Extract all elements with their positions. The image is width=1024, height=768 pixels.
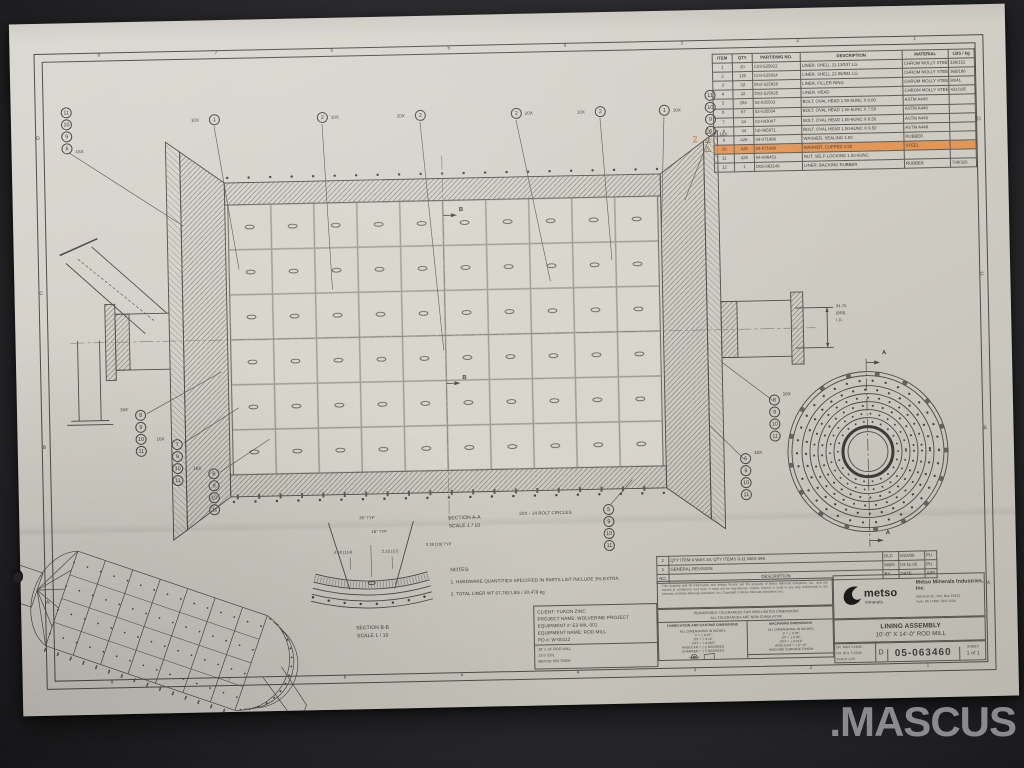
isometric-view — [9, 530, 330, 716]
callout-qty: 16X — [75, 149, 83, 154]
parts-list-table: ITEM QTY PART/DWG NO. DESCRIPTION MATERI… — [712, 48, 977, 173]
bb-dimension: 18" TYP — [372, 529, 387, 534]
client-line: CLIENT: YUKON ZINC — [537, 609, 586, 615]
balloon-stack: 1110 96 — [61, 107, 73, 154]
meta-row: DR. MJN 7/13/06 — [836, 645, 862, 650]
drawing-number-strip: DR. MJN 7/13/06 CH. DLS 7/13/06 SCALE 1:… — [834, 640, 986, 663]
client-line: PROJECT NAME: WOLVERINE PROJECT — [537, 615, 629, 622]
company-name: Metso Minerals Industries, Inc. — [916, 579, 984, 592]
callout-qty: 16X — [783, 391, 791, 396]
cut-label-a: A — [886, 530, 891, 536]
client-line: PO #: W-00112 — [538, 637, 571, 643]
client-subline: 13.5' EGL — [538, 653, 555, 657]
client-line: EQUIPMENT NAME: ROD MILL — [538, 629, 607, 635]
company-address: York, PA 17405-7312 USA — [916, 599, 956, 604]
callout-qty: 10X — [577, 109, 585, 114]
watermark: .MASCUS — [829, 698, 1016, 746]
section-bb-detail — [309, 521, 433, 610]
balloon-stack: 69 1011 — [740, 453, 752, 500]
drawing-sheet: 8 7 6 5 4 3 2 1 8 7 6 5 4 3 2 1 D C B A … — [9, 4, 1019, 717]
punch-hole — [12, 570, 23, 583]
bore-dimension-mm: [883] — [836, 310, 846, 315]
callout-qty: 16X — [719, 131, 727, 136]
logo-word: metso — [864, 587, 898, 600]
balloon-stack: 89 1011 — [769, 394, 781, 441]
third-angle-projection-icon — [688, 653, 718, 661]
client-subline: METSO S/N 75906 — [538, 659, 570, 664]
bb-dimension: 4.50 [114] — [334, 549, 353, 554]
callout-qty: 20X — [397, 113, 405, 118]
cut-label-b: B — [459, 207, 464, 213]
callout-qty: 10X — [331, 115, 339, 120]
notes-title: NOTES: — [450, 567, 469, 573]
client-line: EQUIPMENT #: E2-MIL-001 — [538, 622, 598, 628]
bb-dimension: 0.38 [10] TYP — [426, 541, 452, 547]
cut-label-b: B — [462, 375, 467, 381]
logo-sub: minerals — [865, 599, 883, 604]
client-subline: 10' x 14' ROD MILL — [538, 647, 571, 652]
sheet-value: 1 of 1 — [959, 650, 986, 657]
balloon-stack: 59 1011 — [603, 504, 615, 551]
bb-dimension: 36" TYP — [359, 515, 374, 520]
sheet-label: SHEET — [959, 644, 986, 649]
parts-header: QTY — [732, 53, 752, 63]
callout-qty: 10X — [673, 107, 681, 112]
drawing-number: 05-063460 — [887, 646, 960, 663]
callout-qty: 16X — [754, 450, 762, 455]
callout-qty: 16X — [120, 407, 128, 412]
balloon-stack: 79 1011 — [172, 439, 184, 486]
meta-row: SCALE 1:25 — [836, 657, 855, 661]
mach-line: MACHINE SURFACE FINISH — [747, 646, 834, 652]
company-block: metso minerals Metso Minerals Industries… — [833, 572, 986, 619]
tolerance-block: PERMISSIBLE TOLERANCES FOR NON-LIMITED D… — [657, 605, 834, 661]
meta-row: CH. DLS 7/13/06 — [836, 651, 862, 656]
cut-label-a: A — [882, 350, 887, 356]
callout-qty: 10X — [191, 118, 199, 123]
metso-logo-icon — [840, 584, 862, 608]
proprietary-notice: This drawing and all information and des… — [657, 577, 834, 609]
balloon-stack: 1110 96 — [704, 90, 716, 137]
balloon-stack: 69 1011 — [208, 468, 220, 515]
client-block: CLIENT: YUKON ZINC PROJECT NAME: WOLVERI… — [533, 603, 658, 670]
drawing-subtitle: 10'-0" X 14'-0" ROD MILL — [835, 630, 986, 639]
callout-qty: 16X — [193, 466, 201, 471]
parts-header: ITEM — [712, 54, 732, 64]
callout-qty: 20X — [525, 111, 533, 116]
drawing-title-block: LINING ASSEMBLY 10'-0" X 14'-0" ROD MILL — [834, 616, 986, 643]
balloon-stack: 89 1011 — [135, 410, 147, 457]
bore-dimension-suffix: I.D. — [836, 317, 843, 322]
bore-dimension: 34.75 — [836, 303, 847, 308]
fab-title: FABRICATION AND CASTING DIMENSIONS — [659, 622, 747, 628]
revision-triangle: △2 — [704, 144, 713, 153]
mach-title: MACHINING DIMENSIONS — [747, 620, 835, 626]
bb-dimension: 2.25 [57] — [382, 548, 399, 553]
end-view — [786, 357, 950, 548]
callout-qty: 16X — [157, 436, 165, 441]
